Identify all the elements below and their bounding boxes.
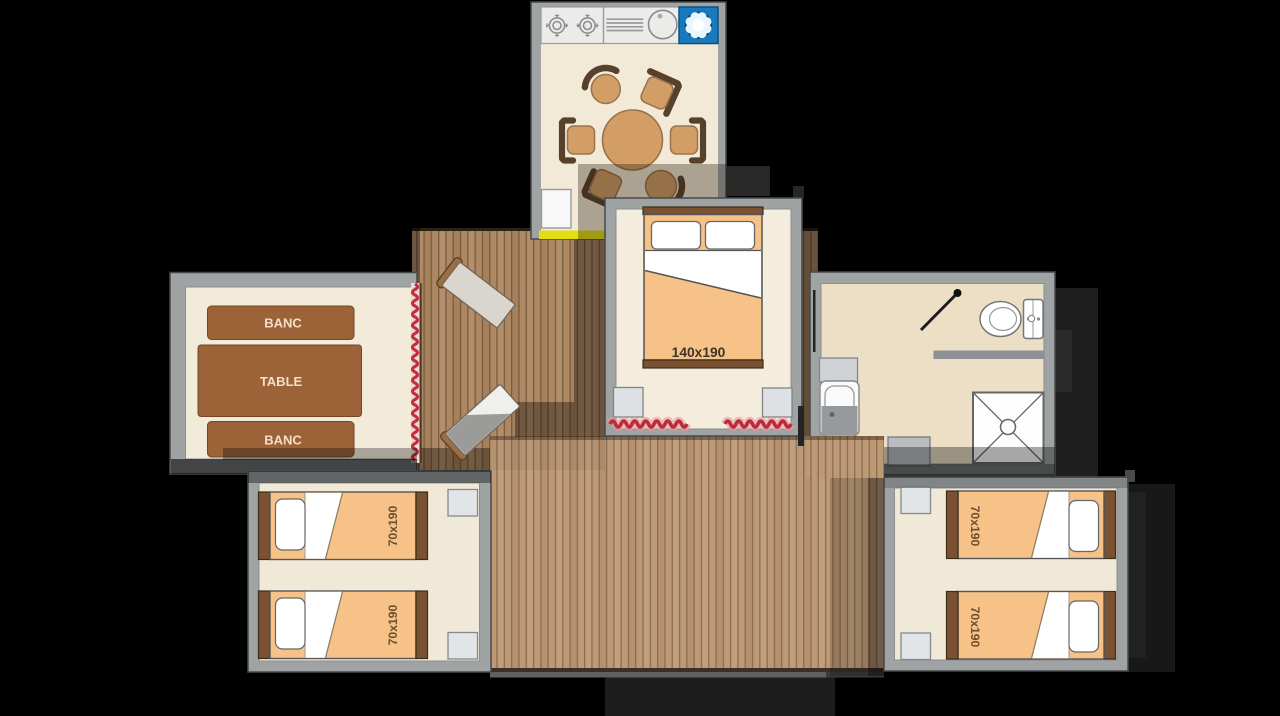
svg-text:BANC: BANC	[264, 316, 302, 331]
svg-text:70x190: 70x190	[968, 506, 982, 547]
svg-text:140x190: 140x190	[672, 345, 726, 360]
svg-text:BANC: BANC	[264, 433, 302, 448]
svg-text:70x190: 70x190	[968, 607, 982, 648]
svg-text:70x190: 70x190	[386, 505, 400, 546]
svg-text:TABLE: TABLE	[260, 374, 303, 389]
svg-text:70x190: 70x190	[386, 604, 400, 645]
